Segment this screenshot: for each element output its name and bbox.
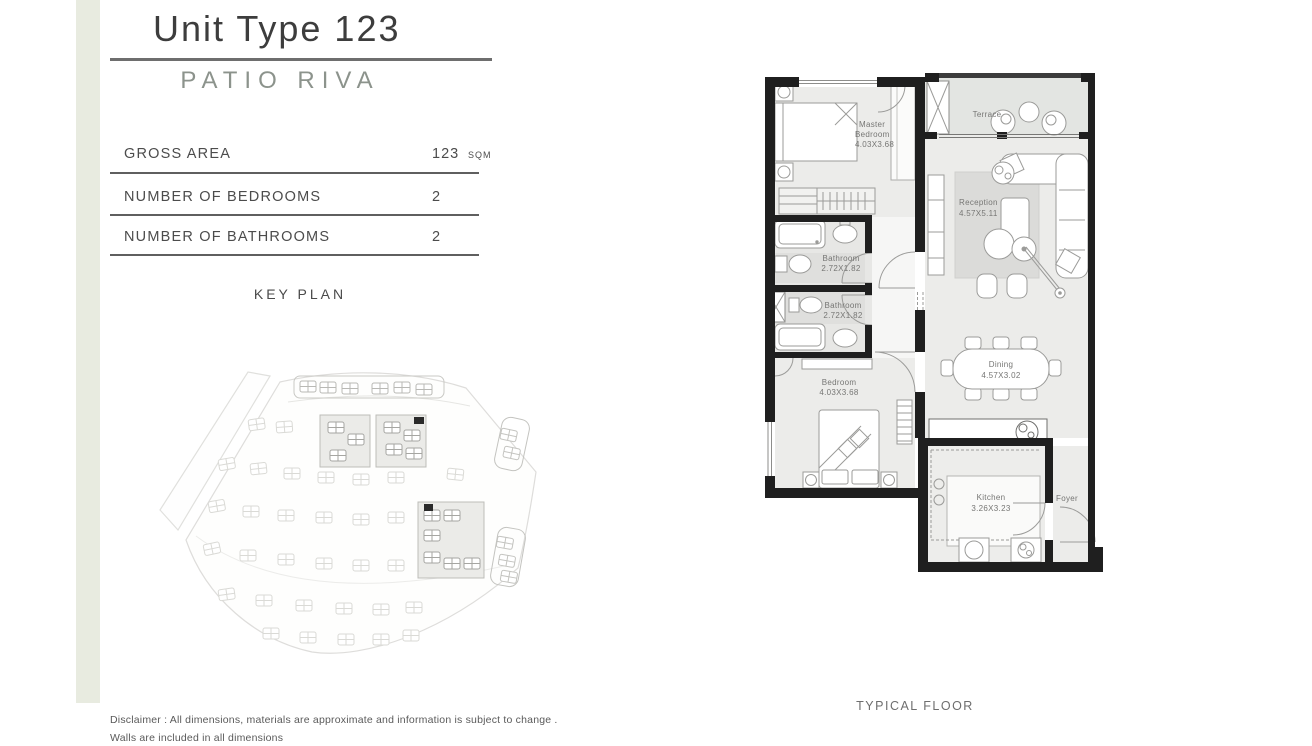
page: Unit Type 123 PATIO RIVA GROSS AREA 123 … bbox=[0, 0, 1312, 746]
sink bbox=[833, 329, 857, 347]
pillow bbox=[822, 470, 848, 484]
pouf bbox=[977, 274, 997, 298]
svg-text:4.57X3.02: 4.57X3.02 bbox=[981, 371, 1020, 380]
shelf bbox=[802, 359, 872, 369]
room-label-kitchen: Kitchen bbox=[977, 493, 1006, 502]
selected-unit-marker bbox=[414, 417, 424, 424]
dining-chair bbox=[993, 388, 1009, 400]
dining-table bbox=[953, 349, 1049, 389]
dining-chair bbox=[941, 360, 953, 376]
round-table bbox=[984, 229, 1014, 259]
spec-unit: SQM bbox=[468, 150, 492, 160]
selected-unit-marker-2 bbox=[424, 504, 433, 511]
svg-text:2.72X1.82: 2.72X1.82 bbox=[823, 311, 862, 320]
floor-plan: Master Bedroom 4.03X3.68 Terrace Recepti… bbox=[763, 70, 1103, 580]
room-label-terrace: Terrace bbox=[973, 110, 1002, 119]
pillow bbox=[852, 470, 878, 484]
svg-text:4.03X3.68: 4.03X3.68 bbox=[819, 388, 858, 397]
key-plan-map bbox=[148, 360, 548, 682]
toilet-tank bbox=[775, 256, 787, 272]
left-accent-strip bbox=[76, 0, 100, 703]
toilet bbox=[789, 255, 811, 273]
spec-value: 2 bbox=[432, 189, 441, 205]
spec-row-gross-area: GROSS AREA 123 SQM bbox=[110, 146, 480, 176]
spec-underline bbox=[110, 172, 479, 174]
dining-chair bbox=[965, 337, 981, 349]
key-plan-heading: KEY PLAN bbox=[110, 286, 490, 302]
spec-row-bathrooms: NUMBER OF BATHROOMS 2 bbox=[110, 229, 480, 259]
svg-text:3.26X3.23: 3.26X3.23 bbox=[971, 504, 1010, 513]
spec-label: NUMBER OF BATHROOMS bbox=[124, 229, 330, 245]
room-label-bathroom-1: Bathroom bbox=[822, 254, 859, 263]
spec-value: 2 bbox=[432, 229, 441, 245]
svg-text:4.03X3.68: 4.03X3.68 bbox=[855, 140, 894, 149]
dining-chair bbox=[993, 337, 1009, 349]
dining-chair bbox=[965, 388, 981, 400]
spec-underline bbox=[110, 214, 479, 216]
svg-text:2.72X1.82: 2.72X1.82 bbox=[821, 264, 860, 273]
terrace-chair bbox=[1042, 111, 1066, 135]
ladder-shelf bbox=[897, 400, 912, 444]
side-table bbox=[992, 162, 1014, 184]
page-subtitle: PATIO RIVA bbox=[110, 67, 450, 95]
room-label-reception: Reception bbox=[959, 198, 998, 207]
pouf bbox=[1007, 274, 1027, 298]
sink bbox=[833, 225, 857, 243]
spec-label: NUMBER OF BEDROOMS bbox=[124, 189, 321, 205]
room-label-foyer: Foyer bbox=[1056, 494, 1078, 503]
disclaimer: Disclaimer : All dimensions, materials a… bbox=[110, 711, 558, 746]
dining-chair bbox=[1049, 360, 1061, 376]
room-label-dining: Dining bbox=[989, 360, 1013, 369]
disclaimer-line-2: Walls are included in all dimensions bbox=[110, 729, 558, 746]
tv-unit bbox=[928, 175, 944, 275]
room-label-master-bedroom: Master bbox=[859, 120, 885, 129]
page-title: Unit Type 123 bbox=[153, 8, 400, 50]
spec-label: GROSS AREA bbox=[124, 146, 231, 162]
toilet-tank bbox=[789, 298, 799, 312]
cooker bbox=[959, 538, 989, 562]
window-bay bbox=[891, 84, 915, 180]
spec-value: 123 bbox=[432, 146, 459, 162]
disclaimer-line-1: Disclaimer : All dimensions, materials a… bbox=[110, 711, 558, 729]
terrace-table bbox=[1019, 102, 1039, 122]
room-label-bedroom: Bedroom bbox=[822, 378, 857, 387]
typical-floor-label: TYPICAL FLOOR bbox=[770, 699, 1060, 713]
spec-row-bedrooms: NUMBER OF BEDROOMS 2 bbox=[110, 189, 480, 219]
dining-chair bbox=[1021, 337, 1037, 349]
svg-text:Bedroom: Bedroom bbox=[855, 130, 890, 139]
svg-text:4.57X5.11: 4.57X5.11 bbox=[959, 209, 998, 218]
spec-underline bbox=[110, 254, 479, 256]
toilet bbox=[800, 297, 822, 313]
title-rule bbox=[110, 58, 492, 61]
master-bed bbox=[775, 103, 857, 161]
dining-chair bbox=[1021, 388, 1037, 400]
room-label-bathroom-2: Bathroom bbox=[824, 301, 861, 310]
